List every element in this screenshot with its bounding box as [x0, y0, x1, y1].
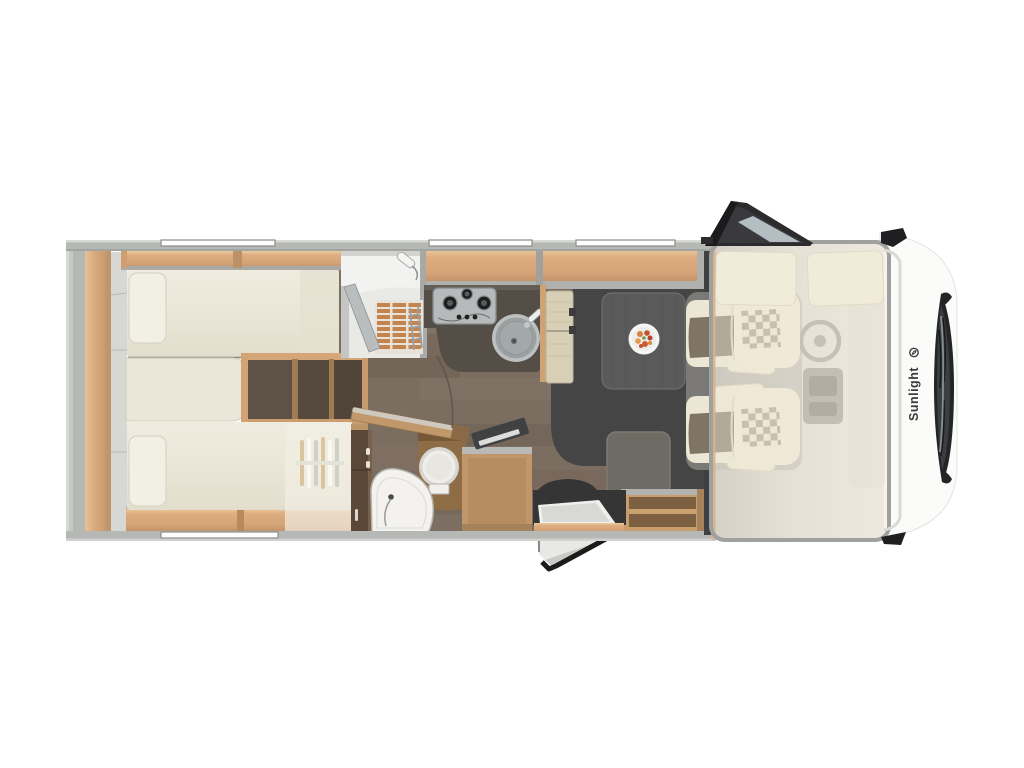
svg-text:Sunlight: Sunlight	[907, 367, 921, 421]
